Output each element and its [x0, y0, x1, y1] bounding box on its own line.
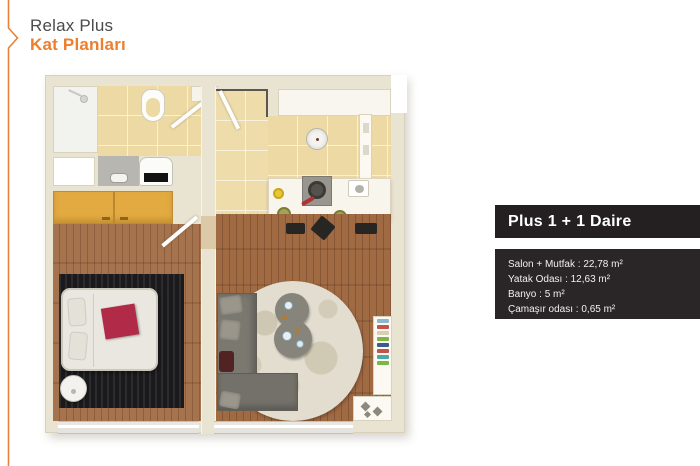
vanity-counter: [98, 156, 139, 186]
wardrobe-handle: [102, 217, 110, 220]
pendant-lamp: [306, 128, 328, 150]
bed-duvet-line: [93, 294, 94, 367]
toilet: [141, 89, 165, 122]
decor-diamond: [364, 411, 371, 418]
vanity-sink: [110, 173, 128, 183]
bedroom-door-gap: [201, 216, 216, 249]
pot-handle: [301, 196, 315, 206]
unit-specs-box: Salon + Mutfak : 22,78 m² Yatak Odası : …: [495, 249, 700, 319]
cabinet-shelf-item: [363, 123, 369, 133]
page-title: Relax Plus: [30, 16, 113, 36]
hall-wall-edge: [266, 89, 268, 117]
unit-title-box: Plus 1 + 1 Daire: [495, 205, 700, 238]
entry-closet: [278, 89, 391, 116]
washing-machine-door: [144, 173, 168, 182]
bed-pillow: [67, 297, 87, 326]
spec-line-yatak-odasi: Yatak Odası : 12,63 m²: [508, 272, 700, 287]
toilet-bowl: [146, 98, 160, 117]
stool-dot: [71, 389, 76, 394]
room-kitchen-floor: [268, 116, 391, 178]
kitchen-sink: [348, 180, 369, 197]
laundry-niche: [53, 157, 95, 186]
decor-diamond: [373, 407, 383, 417]
sofa-pillow: [219, 319, 241, 341]
washing-machine: [139, 157, 173, 186]
sofa-pillow-maroon: [219, 351, 234, 372]
table-plate: [282, 331, 292, 341]
decor-diamond: [361, 402, 371, 412]
coffee-table: [274, 320, 312, 358]
bed-pillow: [68, 331, 88, 360]
sofa-pillow: [219, 295, 243, 316]
spec-line-salon-mutfak: Salon + Mutfak : 22,78 m²: [508, 257, 700, 272]
kitchen-tall-cabinet: [359, 114, 372, 180]
living-window: [214, 421, 353, 434]
cabinet-shelf-item: [363, 145, 369, 155]
bookshelf: [373, 316, 392, 395]
pendant-dot: [316, 138, 319, 141]
book-spine: [377, 319, 389, 323]
faucet: [355, 185, 364, 193]
bedside-stool: [60, 375, 87, 402]
shower: [53, 86, 98, 153]
bed-blanket: [101, 304, 139, 340]
book-spine: [377, 331, 389, 335]
bar-stool: [355, 223, 377, 234]
wardrobe-handle: [120, 217, 128, 220]
decor-box: [353, 396, 392, 421]
book-spine: [377, 355, 389, 359]
table-item: [295, 328, 300, 333]
accent-chevron-line: [0, 0, 22, 466]
table-plate: [296, 340, 304, 348]
book-spine: [377, 343, 389, 347]
plan-notch: [391, 75, 407, 113]
bar-stool: [286, 223, 305, 234]
book-spine: [377, 349, 389, 353]
shower-hose: [68, 89, 82, 97]
sofa-pillow: [219, 390, 241, 409]
page-subtitle: Kat Planları: [30, 35, 126, 55]
spec-line-banyo: Banyo : 5 m²: [508, 287, 700, 302]
wardrobe-divider: [113, 192, 115, 223]
stove: [302, 176, 332, 206]
book-spine: [377, 337, 389, 341]
book-spine: [377, 361, 389, 365]
table-item: [282, 315, 287, 320]
wardrobe: [53, 191, 173, 224]
unit-title: Plus 1 + 1 Daire: [508, 213, 632, 231]
book-spine: [377, 325, 389, 329]
hall-floor: [216, 89, 268, 214]
page: Relax Plus Kat Planları: [0, 0, 700, 466]
lemon-bowl: [273, 188, 284, 199]
table-plate: [284, 301, 293, 310]
middle-wall: [201, 86, 216, 434]
bedroom-window: [58, 421, 199, 434]
bed: [61, 288, 158, 371]
floor-plan: [45, 75, 405, 433]
spec-line-camasir-odasi: Çamaşır odası : 0,65 m²: [508, 302, 700, 317]
